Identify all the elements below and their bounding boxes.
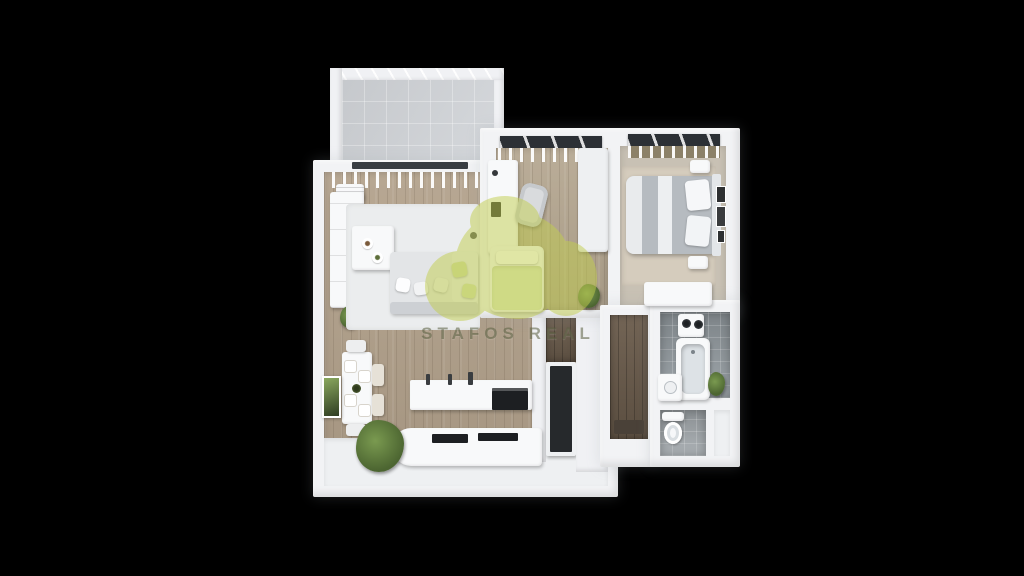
wall-art-frame-1: [716, 186, 726, 203]
wall-art-frame-2: [716, 206, 726, 227]
fridge-front: [550, 366, 572, 452]
counter-item-1: [426, 374, 430, 385]
bed-pillow-2: [684, 215, 711, 247]
bedroom-curtain: [628, 146, 720, 158]
bathtub-drain: [691, 350, 695, 354]
utility-niche: [714, 410, 730, 456]
floorplan-render: STAFOS REAL: [0, 0, 1024, 576]
bed-foot-sheet: [626, 176, 642, 254]
dining-plate-4: [358, 404, 371, 417]
watermark-text: STAFOS REAL: [418, 324, 598, 344]
tall-cabinet-fridge: [546, 362, 576, 456]
balcony-floor: [342, 80, 500, 168]
dining-plate-2: [344, 394, 357, 407]
dining-chair-right-2: [372, 394, 384, 416]
dresser: [644, 282, 712, 306]
living-window: [352, 162, 468, 169]
cooktop-2: [478, 433, 518, 441]
wall-art-frame-3: [717, 230, 725, 243]
balcony-left-wall: [330, 68, 342, 168]
cooktop-1: [432, 434, 468, 443]
toilet-tank: [662, 412, 684, 421]
nightstand-top: [690, 160, 710, 173]
oven: [492, 388, 528, 410]
vanity-sink: [664, 381, 677, 394]
bed-sheet-band: [658, 176, 672, 254]
dining-plate-1: [344, 360, 357, 373]
plate-2: [372, 252, 383, 263]
dining-chair-right-1: [372, 364, 384, 386]
desk-lamp: [492, 170, 498, 176]
doormat: [614, 420, 644, 434]
dining-plate-3: [358, 370, 371, 383]
washer-door-2: [694, 320, 703, 329]
nightstand-bottom: [688, 256, 708, 269]
toilet-bowl: [664, 422, 682, 444]
coffee-table: [352, 226, 394, 270]
dining-chair-top: [346, 340, 366, 352]
table-centerpiece: [352, 384, 361, 393]
counter-item-3: [468, 372, 473, 385]
sofa-pillow-white-1: [395, 277, 411, 293]
washer-door-1: [682, 319, 691, 328]
bed-pillow-1: [684, 179, 711, 211]
dining-wall-art: [322, 376, 341, 418]
counter-item-2: [448, 374, 452, 385]
plate-1: [362, 238, 373, 249]
